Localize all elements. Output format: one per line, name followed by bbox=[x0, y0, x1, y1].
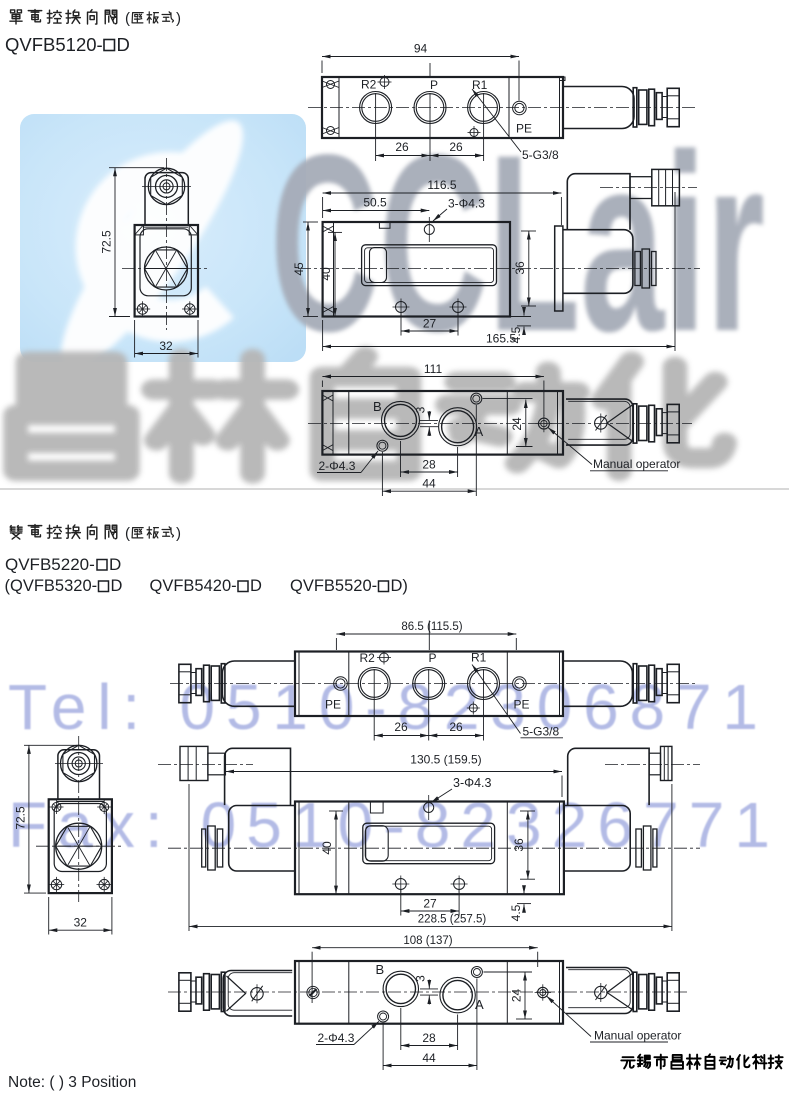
svg-text:116.5: 116.5 bbox=[427, 178, 456, 192]
svg-text:108 (137): 108 (137) bbox=[403, 935, 452, 947]
svg-text:(: ( bbox=[125, 525, 130, 542]
svg-text:5-G3/8: 5-G3/8 bbox=[523, 725, 560, 739]
svg-text:QVFB5520-: QVFB5520- bbox=[290, 577, 377, 595]
svg-text:Note: ( ) 3 Position: Note: ( ) 3 Position bbox=[8, 1074, 136, 1091]
svg-text:94: 94 bbox=[414, 42, 428, 56]
svg-text:5-G3/8: 5-G3/8 bbox=[522, 148, 559, 162]
svg-text:Manual operator: Manual operator bbox=[594, 1029, 681, 1043]
svg-text:2-Φ4.3: 2-Φ4.3 bbox=[318, 1031, 355, 1045]
svg-text:R1: R1 bbox=[472, 78, 488, 92]
svg-text:D: D bbox=[117, 34, 130, 55]
svg-text:QVFB5120-: QVFB5120- bbox=[5, 34, 103, 55]
svg-text:D: D bbox=[111, 577, 123, 595]
svg-text:PE: PE bbox=[516, 122, 532, 136]
svg-text:4.5: 4.5 bbox=[509, 904, 523, 921]
svg-text:72.5: 72.5 bbox=[100, 230, 114, 254]
svg-text:3: 3 bbox=[414, 975, 428, 982]
svg-text:R2: R2 bbox=[361, 78, 377, 92]
svg-text:3: 3 bbox=[414, 406, 428, 413]
svg-text:QVFB5220-: QVFB5220- bbox=[5, 555, 95, 574]
svg-text:PE: PE bbox=[514, 698, 530, 712]
svg-text:44: 44 bbox=[422, 1051, 436, 1065]
svg-text:24: 24 bbox=[510, 989, 524, 1003]
svg-text:D): D) bbox=[391, 577, 408, 595]
svg-text:36: 36 bbox=[513, 261, 527, 275]
svg-text:B: B bbox=[373, 399, 382, 414]
svg-text:72.5: 72.5 bbox=[13, 806, 27, 830]
svg-text:45: 45 bbox=[292, 262, 306, 276]
svg-text:26: 26 bbox=[449, 720, 463, 734]
svg-text:R1: R1 bbox=[471, 651, 487, 665]
svg-text:40: 40 bbox=[320, 841, 334, 855]
svg-text:27: 27 bbox=[423, 317, 437, 331]
svg-text:27: 27 bbox=[423, 897, 437, 911]
svg-text:26: 26 bbox=[449, 140, 463, 154]
svg-text:86.5 (115.5): 86.5 (115.5) bbox=[401, 621, 462, 633]
svg-text:P: P bbox=[429, 651, 437, 665]
svg-text:): ) bbox=[176, 10, 181, 27]
svg-text:P: P bbox=[430, 78, 438, 92]
svg-text:165.5: 165.5 bbox=[486, 332, 516, 346]
svg-text:40: 40 bbox=[319, 267, 333, 281]
svg-text:32: 32 bbox=[159, 339, 173, 353]
svg-text:26: 26 bbox=[394, 720, 408, 734]
svg-text:228.5 (257.5): 228.5 (257.5) bbox=[418, 914, 487, 926]
svg-text:(: ( bbox=[125, 10, 130, 27]
svg-text:28: 28 bbox=[422, 458, 436, 472]
svg-text:3-Φ4.3: 3-Φ4.3 bbox=[448, 197, 485, 211]
svg-text:A: A bbox=[475, 997, 484, 1012]
svg-text:50.5: 50.5 bbox=[363, 196, 387, 210]
svg-text:3-Φ4.3: 3-Φ4.3 bbox=[453, 776, 492, 790]
svg-text:28: 28 bbox=[422, 1031, 436, 1045]
svg-text:26: 26 bbox=[395, 140, 409, 154]
svg-text:(QVFB5320-: (QVFB5320- bbox=[5, 577, 98, 595]
svg-text:D: D bbox=[250, 577, 262, 595]
svg-text:R2: R2 bbox=[360, 651, 376, 665]
svg-text:D: D bbox=[109, 555, 121, 574]
svg-text:2-Φ4.3: 2-Φ4.3 bbox=[319, 459, 356, 473]
svg-text:24: 24 bbox=[510, 417, 524, 431]
svg-text:32: 32 bbox=[74, 916, 88, 930]
svg-text:Tel: 0510-82306871: Tel: 0510-82306871 bbox=[8, 671, 758, 743]
svg-text:130.5 (159.5): 130.5 (159.5) bbox=[410, 753, 481, 767]
svg-text:PE: PE bbox=[325, 698, 341, 712]
svg-text:111: 111 bbox=[424, 362, 443, 376]
svg-text:44: 44 bbox=[422, 477, 436, 491]
svg-text:): ) bbox=[176, 525, 181, 542]
svg-text:Fax: 0510-82326771: Fax: 0510-82326771 bbox=[8, 789, 770, 861]
svg-text:QVFB5420-: QVFB5420- bbox=[150, 577, 237, 595]
svg-text:B: B bbox=[376, 962, 385, 977]
svg-text:36: 36 bbox=[512, 838, 526, 852]
svg-text:Manual operator: Manual operator bbox=[593, 457, 680, 471]
